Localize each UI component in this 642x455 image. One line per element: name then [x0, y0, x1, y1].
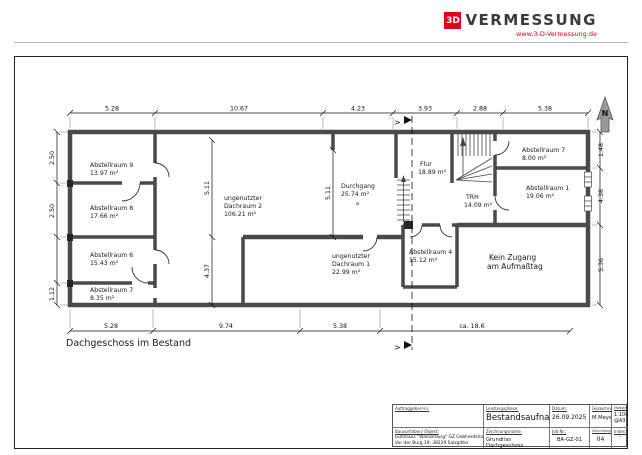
drawn-value: M.Meyer: [592, 415, 609, 421]
room-area: 14.09 m²: [464, 202, 493, 209]
room-area: 8.35 m²: [90, 295, 115, 302]
room-area: 18.89 m²: [418, 169, 447, 176]
room-label: Abstellraum 8: [90, 205, 133, 212]
dim-label: 5.28: [105, 106, 119, 113]
plan-title: Dachgeschoss im Bestand: [66, 338, 191, 349]
room-area: 15.12 m²: [409, 257, 438, 264]
titleblock-drawn-cell: Gezeichnet: M.Meyer: [589, 405, 611, 427]
room-area: 17.66 m²: [90, 213, 119, 220]
drawing-value: Grundriss Dachgeschoss: [486, 437, 547, 448]
date-value: 26.09.2025: [552, 414, 587, 421]
drawing-label: Zeichnungsname:: [486, 429, 547, 434]
dim-label: ca. 18.6: [459, 323, 484, 330]
room-label: Durchgang: [341, 183, 375, 190]
building-walls: [70, 132, 588, 305]
titleblock-date-cell: Datum: 26.09.2025: [549, 405, 589, 427]
titleblock-project-cell: Bauvorhaben/ Objekt: Gutshaus "Wasserbur…: [393, 427, 483, 448]
stair-trh: [456, 134, 492, 182]
plan-sheet: 3D VERMESSUNG www.3-D-Vermessung.de: [0, 0, 642, 455]
room-label: Abstellraum 9: [90, 162, 133, 169]
client-label: Auftraggeber/-in:: [395, 406, 481, 411]
scale-label: Maßstab:: [614, 406, 626, 410]
no-access-note: am Aufmaßtag: [487, 262, 543, 271]
room-label: Abstellraum 4: [409, 249, 452, 256]
project-line1: Gutshaus "Wasserburg" GZ Gebhardshagen: [395, 435, 481, 440]
titleblock-phase-cell: Leistungsphase: Bestandsaufnahme: [483, 405, 549, 427]
title-block: Auftraggeber/-in: Leistungsphase: Bestan…: [392, 404, 627, 447]
room-area: 22.99 m²: [332, 269, 361, 276]
dim-label: 5.38: [538, 106, 552, 113]
room-label: TRH: [465, 194, 479, 201]
dimension-labels: 5.28 10.67 4.23 3.93 2.88 5.38 5.28 9.74…: [49, 106, 605, 331]
number-label: Zeichnungs-Nr.:: [592, 429, 609, 433]
phase-value: Bestandsaufnahme: [486, 413, 547, 423]
room-label: Abstellraum 7: [90, 287, 133, 294]
dim-label: 4.37: [204, 264, 211, 278]
stair-passage: [397, 175, 410, 222]
north-arrow-icon: N: [597, 97, 613, 132]
date-label: Datum:: [552, 406, 587, 411]
job-label: Job Nr.:: [552, 429, 587, 434]
annotation-a: a: [356, 201, 359, 207]
job-value: BA-GZ-01: [552, 437, 587, 443]
dim-label: 2.88: [473, 106, 487, 113]
phase-label: Leistungsphase:: [486, 406, 547, 411]
svg-text:>: >: [394, 118, 401, 127]
dim-label: 5.28: [104, 323, 118, 330]
dim-label: 2.50: [49, 204, 56, 218]
dim-label: 1.48: [598, 143, 605, 157]
dim-label: 9.74: [219, 323, 233, 330]
room-label: Dachraum 2: [224, 203, 262, 210]
titleblock-job-cell: Job Nr.: BA-GZ-01: [549, 427, 589, 448]
room-label: Flur: [420, 161, 432, 168]
titleblock-drawing-cell: Zeichnungsname: Grundriss Dachgeschoss: [483, 427, 549, 448]
room-label: Abstellraum 7: [522, 147, 565, 154]
project-line2: Vor der Burg 19, 38229 Salzgitter: [395, 441, 481, 446]
dimension-lines: [54, 110, 603, 334]
north-label: N: [602, 109, 609, 118]
number-value: 04: [592, 436, 609, 443]
room-area: 13.97 m²: [90, 170, 119, 177]
dim-label: 4.38: [598, 189, 605, 203]
svg-text:>: >: [394, 343, 401, 352]
titleblock-number-cell: Zeichnungs-Nr.: 04: [589, 427, 611, 448]
dim-label: 5.11: [325, 186, 332, 200]
room-label: ungenutzter: [332, 253, 370, 260]
room-label: Dachraum 1: [332, 261, 370, 268]
room-label: Abstellraum 6: [90, 252, 133, 259]
dim-label: 3.93: [418, 106, 432, 113]
dim-label: 4.23: [351, 106, 365, 113]
dim-label: 5.11: [204, 181, 211, 195]
drawn-label: Gezeichnet:: [592, 406, 609, 411]
dim-label: 5.36: [598, 258, 605, 272]
dim-label: 1.12: [49, 287, 56, 301]
room-label: ungenutzter: [224, 195, 262, 202]
titleblock-index-cell: Index: -: [611, 427, 628, 448]
room-area: 106.21 m²: [224, 211, 257, 218]
room-area: 8.00 m²: [522, 155, 547, 162]
floor-plan-drawing: > > N 5.28: [0, 0, 642, 455]
scale-sheet: @A3: [614, 418, 626, 424]
no-access-note: Kein Zugang: [489, 253, 536, 262]
project-label: Bauvorhaben/ Objekt:: [395, 429, 481, 434]
index-value: -: [614, 434, 626, 440]
titleblock-scale-cell: Maßstab: 1:100 @A3: [611, 405, 628, 427]
titleblock-client-cell: Auftraggeber/-in:: [393, 405, 483, 427]
dim-label: 5.38: [333, 323, 347, 330]
dim-label: 10.67: [230, 106, 248, 113]
room-label: Abstellraum 1: [526, 185, 569, 192]
room-area: 15.43 m²: [90, 260, 119, 267]
room-area: 25.74 m²: [341, 191, 370, 198]
room-area: 19.06 m²: [526, 193, 555, 200]
dim-label: 2.50: [49, 151, 56, 165]
